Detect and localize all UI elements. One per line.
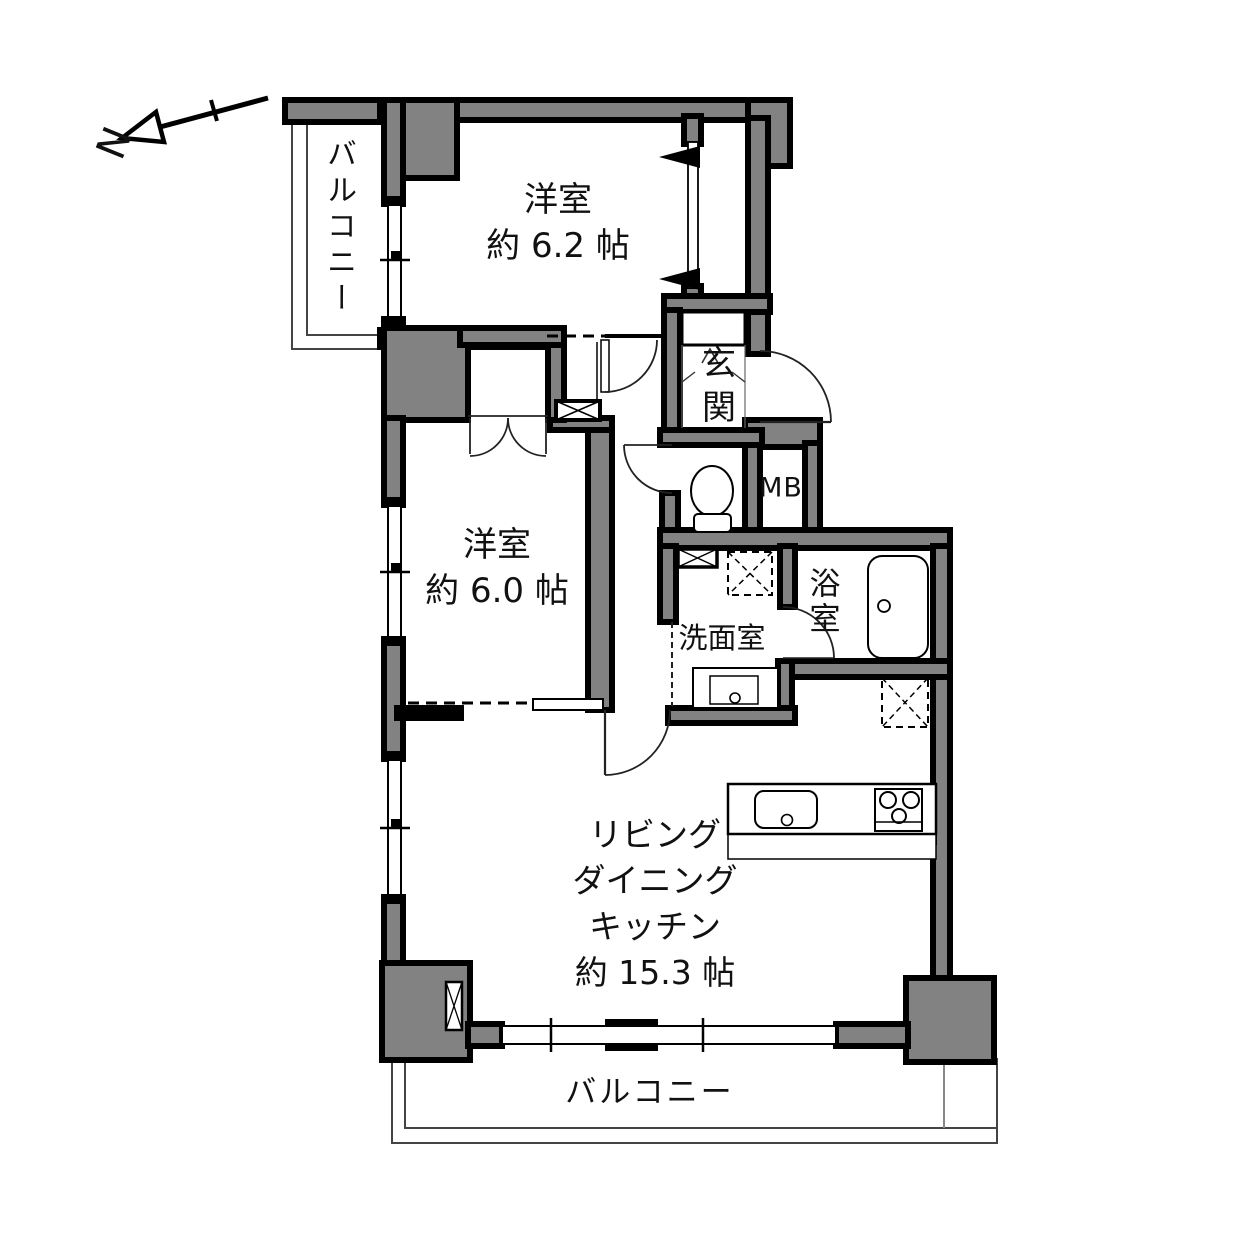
vanity-sink: [693, 668, 778, 708]
door-closet-bedroom2: [468, 416, 548, 456]
washroom-label: 洗面室: [678, 615, 765, 657]
door-ldk: [605, 710, 670, 775]
slide-arrow-icon: [659, 268, 700, 290]
pipe-shaft-marker: [678, 549, 717, 567]
meter-box-label: MB: [759, 473, 803, 504]
door-entrance: [760, 351, 831, 422]
ldk-line2: ダイニング: [573, 858, 738, 904]
bedroom1-name: 洋室: [486, 177, 630, 223]
toilet-fixture: [691, 466, 733, 532]
fridge-space-marker: [882, 678, 928, 727]
bedroom2-size: 約 6.0 帖: [425, 568, 569, 614]
pipe-shaft-marker: [556, 401, 600, 420]
pipe-shaft-marker: [446, 982, 462, 1030]
entrance-label: 玄関: [692, 345, 741, 433]
door-bedroom1: [601, 340, 657, 392]
room2-bottom-stub: [394, 705, 464, 721]
low-partition: [533, 699, 603, 710]
slide-arrow-icon: [659, 146, 700, 168]
kitchen-counter: [728, 784, 936, 859]
washer-space-marker: [728, 552, 772, 595]
balcony-top-label: バルコニー: [316, 138, 360, 318]
bedroom2-label: 洋室 約 6.0 帖: [425, 522, 569, 614]
ldk-line3: キッチン: [573, 904, 738, 950]
floorplan-page: N バルコニー 洋室 約 6.2 帖 洋室 約 6.0 帖 玄関 MB 浴室 洗…: [0, 0, 1252, 1252]
shoe-cabinet: [682, 312, 745, 345]
bathroom-label: 浴室: [800, 567, 845, 637]
ldk-line1: リビング: [573, 812, 738, 858]
ldk-size: 約 15.3 帖: [573, 950, 738, 996]
door-toilet: [624, 445, 672, 493]
closet-bedroom1-sliding: [659, 142, 700, 290]
stove-burners: [875, 789, 922, 831]
ldk-label: リビング ダイニング キッチン 約 15.3 帖: [573, 812, 738, 996]
north-arrow-icon: [122, 98, 268, 142]
balcony-bottom-label: バルコニー: [565, 1067, 734, 1112]
bedroom1-size: 約 6.2 帖: [486, 223, 630, 269]
bedroom1-label: 洋室 約 6.2 帖: [486, 177, 630, 269]
bathtub-fixture: [868, 556, 928, 658]
bedroom2-name: 洋室: [425, 522, 569, 568]
